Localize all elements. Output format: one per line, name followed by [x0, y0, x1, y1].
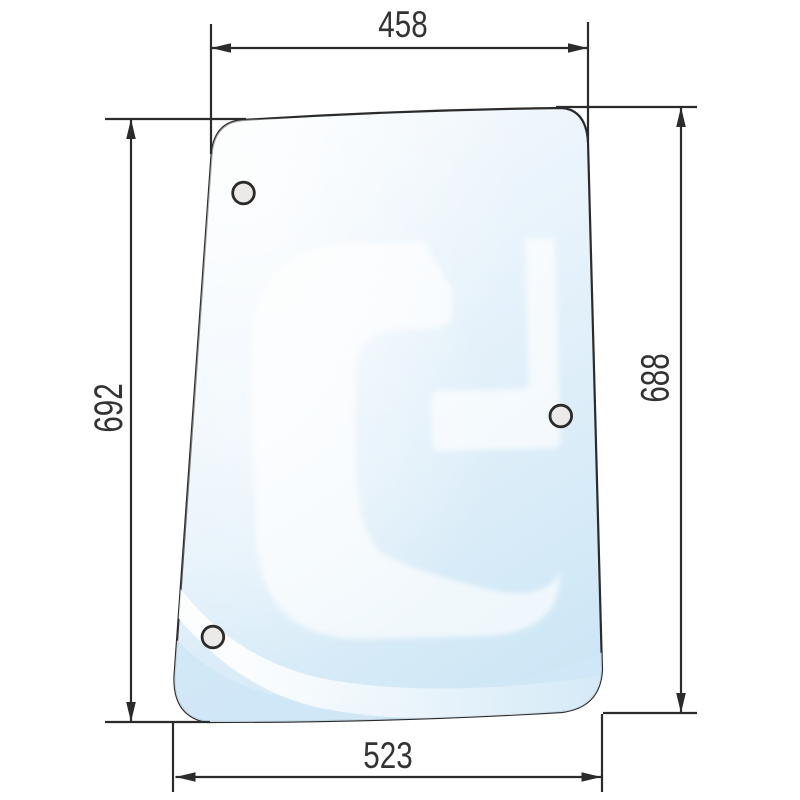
svg-text:458: 458 — [378, 5, 427, 46]
svg-text:688: 688 — [633, 353, 677, 402]
svg-text:692: 692 — [87, 383, 131, 432]
svg-text:523: 523 — [363, 736, 412, 777]
